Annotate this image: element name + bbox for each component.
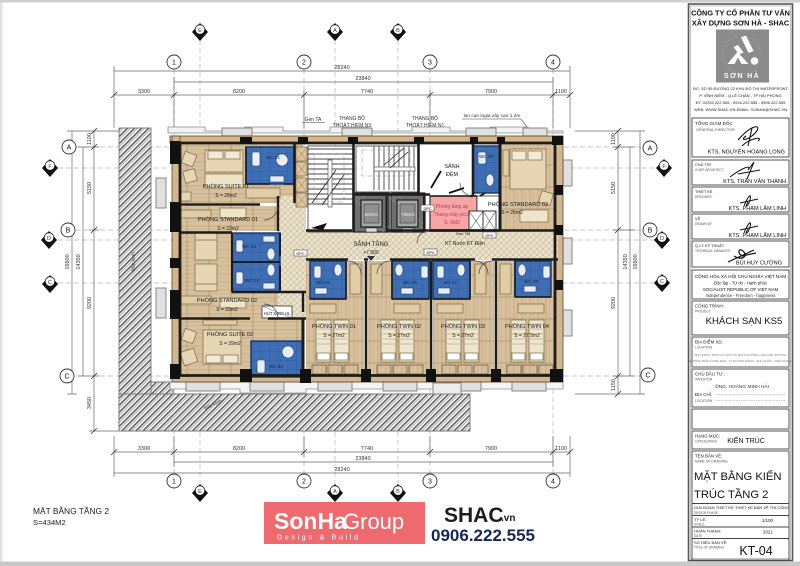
svg-text:LOCATION: LOCATION	[695, 346, 713, 350]
svg-text:S = 27m2: S = 27m2	[388, 333, 410, 339]
svg-text:SOCIALIST REPUBLIC OF VIET NAM: SOCIALIST REPUBLIC OF VIET NAM	[703, 287, 779, 292]
svg-text:E: E	[198, 28, 202, 34]
svg-text:1150: 1150	[611, 379, 617, 391]
svg-text:16600: 16600	[633, 254, 639, 269]
svg-text:PHÒNG TWIN 02: PHÒNG TWIN 02	[377, 323, 421, 330]
svg-text:PHÒNG STANDARD 03: PHÒNG STANDARD 03	[488, 201, 548, 208]
svg-text:7740: 7740	[361, 89, 373, 95]
svg-text:2021: 2021	[763, 530, 773, 535]
svg-text:PHÒNG TWIN 01: PHÒNG TWIN 01	[312, 323, 356, 330]
svg-text:7900: 7900	[485, 446, 497, 452]
svg-text:5150: 5150	[87, 182, 93, 194]
svg-text:B: B	[396, 489, 400, 495]
svg-text:ĐỊA CHỈ: ĐỊA CHỈ	[695, 392, 712, 397]
svg-text:Gen TA: Gen TA	[305, 117, 322, 123]
svg-text:8200: 8200	[233, 446, 245, 452]
svg-text:28240: 28240	[334, 65, 349, 71]
svg-text:KTS. NGUYỄN HOÀNG LONG: KTS. NGUYỄN HOÀNG LONG	[708, 149, 785, 156]
svg-text:HÚT KHÓI HL: HÚT KHÓI HL	[264, 311, 291, 316]
svg-text:S = 27m2: S = 27m2	[452, 333, 474, 339]
svg-text:B: B	[396, 28, 400, 34]
svg-text:1100: 1100	[555, 446, 567, 452]
svg-text:TITLE OF DRAWING: TITLE OF DRAWING	[694, 546, 725, 550]
svg-text:ĐT: 02252.222.555 - 0916.222.5: ĐT: 02252.222.555 - 0916.222.555 - 0906.…	[696, 100, 787, 105]
svg-text:CÔNG TRÌNH:: CÔNG TRÌNH:	[695, 304, 724, 309]
svg-text:1: 1	[172, 60, 176, 67]
svg-text:ĐƯỜNG TRẦN HƯNG ĐẠO - TT DƯƠNG: ĐƯỜNG TRẦN HƯNG ĐẠO - TT DƯƠNG ĐÔNG - PH…	[690, 358, 793, 363]
svg-text:Mái kính: Mái kính	[131, 252, 137, 271]
svg-text:ĐỆM: ĐỆM	[446, 170, 459, 178]
svg-text:A: A	[333, 489, 337, 495]
svg-text:WEB: WWW.SHAC.VN-EMAIL: SONHA@: WEB: WWW.SHAC.VN-EMAIL: SONHA@SHAC.VN	[694, 107, 787, 112]
svg-text:WC 01: WC 01	[266, 155, 280, 160]
svg-text:KTS. TRẦN VĂN THÀNH: KTS. TRẦN VĂN THÀNH	[723, 178, 786, 185]
svg-text:1: 1	[172, 479, 176, 486]
svg-text:Group: Group	[343, 509, 404, 534]
svg-text:Gen TM: Gen TM	[456, 231, 470, 236]
svg-text:DESIGN PHASE: DESIGN PHASE	[694, 511, 718, 515]
svg-text:THIẾT KẾ BẢN VẼ THI CÔNG: THIẾT KẾ BẢN VẼ THI CÔNG	[735, 505, 789, 510]
svg-text:5150: 5150	[611, 182, 617, 194]
svg-text:NAME OF DRAWING: NAME OF DRAWING	[695, 460, 728, 464]
svg-text:PHÒNG STANDARD 02: PHÒNG STANDARD 02	[197, 297, 257, 304]
svg-text:28240: 28240	[334, 467, 349, 473]
svg-text:CỘNG HÒA XÃ HỘI CHỦ NGHĨA VIỆT: CỘNG HÒA XÃ HỘI CHỦ NGHĨA VIỆT NAM	[695, 272, 786, 279]
svg-text:KHÁCH SẠN KS5: KHÁCH SẠN KS5	[706, 316, 783, 327]
svg-text:0906.222.555: 0906.222.555	[431, 526, 535, 545]
svg-text:PHÒNG SUITE 02: PHÒNG SUITE 02	[207, 331, 253, 338]
svg-text:lan can logia xây cao 1.2m: lan can logia xây cao 1.2m	[464, 113, 521, 119]
svg-text:2: 2	[302, 60, 306, 67]
svg-text:Design & Build: Design & Build	[277, 533, 361, 542]
svg-text:A: A	[648, 146, 653, 153]
svg-text:Độc lập - Tự do - Hạnh phúc: Độc lập - Tự do - Hạnh phúc	[714, 281, 767, 286]
svg-text:3: 3	[428, 479, 432, 486]
svg-text:WC 09: WC 09	[479, 154, 493, 159]
svg-text:B: B	[648, 228, 653, 235]
svg-text:SẢNH: SẢNH	[444, 163, 459, 170]
svg-text:S = 29m2: S = 29m2	[219, 341, 241, 347]
svg-text:1100: 1100	[87, 133, 93, 145]
svg-text:KT Nước KT Điện: KT Nước KT Điện	[445, 241, 485, 247]
svg-text:C: C	[660, 279, 664, 285]
svg-text:D: D	[47, 236, 51, 242]
svg-text:C: C	[48, 280, 52, 286]
svg-text:WC 03: WC 03	[245, 278, 259, 283]
svg-text:WC 04: WC 04	[269, 364, 283, 369]
svg-text:SỐ HIỆU BẢN VẼ:: SỐ HIỆU BẢN VẼ:	[694, 540, 727, 545]
svg-text:9200: 9200	[87, 297, 93, 309]
svg-text:S=434M2: S=434M2	[33, 518, 66, 527]
svg-text:14350: 14350	[623, 254, 629, 269]
svg-text:3450: 3450	[87, 397, 93, 409]
svg-text:Thang máy pccc: Thang máy pccc	[434, 212, 471, 218]
svg-text:KTS. PHẠM LÂM LINH: KTS. PHẠM LÂM LINH	[728, 232, 786, 239]
svg-text:2: 2	[302, 479, 306, 486]
svg-text:P. VĨNH NIỆM - Q.LÊ CHÂN - TP: P. VĨNH NIỆM - Q.LÊ CHÂN - TP HẢI PHÒNG	[699, 93, 781, 98]
svg-text:THANG BỘ: THANG BỘ	[412, 115, 438, 122]
svg-text:7900: 7900	[485, 89, 497, 95]
svg-text:A: A	[67, 145, 72, 152]
svg-text:3: 3	[428, 60, 432, 67]
svg-text:S = 27.5m2: S = 27.5m2	[514, 333, 540, 339]
svg-text:HOÀN THÀNH:: HOÀN THÀNH:	[694, 529, 721, 534]
svg-text:16600: 16600	[65, 254, 71, 269]
svg-text:DPC: DPC	[423, 207, 431, 211]
svg-text:S = 23m2: S = 23m2	[217, 226, 239, 232]
svg-text:Phòng tầng áp: Phòng tầng áp	[436, 204, 469, 210]
svg-text:CÔNG TY CỔ PHẦN TƯ VẤN: CÔNG TY CỔ PHẦN TƯ VẤN	[691, 8, 790, 18]
svg-text:ỐPC: ỐPC	[296, 251, 304, 256]
svg-text:THIẾT KẾ: THIẾT KẾ	[695, 189, 713, 194]
svg-text:PHÒNG TWIN 03: PHÒNG TWIN 03	[441, 323, 485, 330]
svg-text:ỐPC: ỐPC	[426, 250, 434, 255]
svg-text:KHU PHỨC HỢP DU LỊCH VÀ NGHỈ D: KHU PHỨC HỢP DU LỊCH VÀ NGHỈ DƯỠNG CAO C…	[694, 352, 787, 357]
svg-text:MẶT BẰNG TẦNG 2: MẶT BẰNG TẦNG 2	[33, 506, 109, 516]
svg-text:9200: 9200	[611, 297, 617, 309]
svg-text:INVESTOR: INVESTOR	[695, 378, 713, 382]
svg-text:SHAC: SHAC	[444, 504, 504, 527]
svg-text:D: D	[660, 236, 664, 242]
svg-text:LOCATION: LOCATION	[695, 399, 713, 403]
svg-text:HẠNG MỤC:: HẠNG MỤC:	[695, 434, 720, 439]
svg-text:8200: 8200	[233, 89, 245, 95]
svg-text:1100: 1100	[611, 133, 617, 145]
svg-text:7740: 7740	[361, 446, 373, 452]
svg-text:SẢNH TẦNG: SẢNH TẦNG	[354, 241, 389, 248]
svg-text:KTS. PHẠM LÂM LINH: KTS. PHẠM LÂM LINH	[728, 205, 786, 212]
svg-text:PHÒNG TWIN 04: PHÒNG TWIN 04	[505, 323, 549, 330]
svg-text:DATE: DATE	[694, 534, 702, 538]
svg-text:PHÒNG SUITE 01: PHÒNG SUITE 01	[203, 183, 249, 190]
svg-text:XÂY DỰNG SƠN HÀ - SHAC: XÂY DỰNG SƠN HÀ - SHAC	[692, 19, 790, 28]
svg-text:4: 4	[551, 60, 555, 67]
svg-text:.vn: .vn	[501, 513, 515, 524]
svg-text:+7.500: +7.500	[363, 250, 379, 256]
svg-text:3300: 3300	[138, 89, 150, 95]
svg-text:SƠN HÀ: SƠN HÀ	[724, 71, 760, 80]
svg-text:ỐPC: ỐPC	[485, 233, 493, 238]
svg-text:VẼ: VẼ	[695, 216, 701, 221]
svg-text:S = 27m2: S = 27m2	[323, 333, 345, 339]
svg-text:ĐỊA ĐIỂM XD:: ĐỊA ĐIỂM XD:	[695, 340, 723, 345]
svg-text:3300: 3300	[138, 446, 150, 452]
svg-text:CATEGORIES: CATEGORIES	[695, 440, 718, 444]
svg-text:23840: 23840	[355, 456, 370, 462]
svg-text:CHỦ ĐẦU TƯ:: CHỦ ĐẦU TƯ:	[695, 372, 724, 377]
svg-text:B: B	[66, 228, 71, 235]
svg-text:SCALE: SCALE	[694, 523, 704, 527]
svg-text:S. 6M2: S. 6M2	[444, 220, 460, 226]
svg-text:GENERAL DIRECTOR: GENERAL DIRECTOR	[696, 128, 735, 132]
svg-text:PROJECT: PROJECT	[695, 310, 711, 314]
svg-text:4: 4	[551, 479, 555, 486]
svg-text:DRAWN BY: DRAWN BY	[695, 222, 713, 226]
svg-text:THANG BỘ: THANG BỘ	[339, 115, 365, 122]
svg-text:TECHNICAL MANAGER: TECHNICAL MANAGER	[695, 249, 731, 253]
svg-text:WC 02: WC 02	[242, 244, 256, 249]
svg-text:S = 23m2: S = 23m2	[216, 307, 238, 313]
svg-text:CHIEF ARCHITECT: CHIEF ARCHITECT	[695, 168, 724, 172]
svg-text:TỔNG GIÁM ĐỐC: TỔNG GIÁM ĐỐC	[695, 120, 733, 126]
svg-text:750KG: 750KG	[401, 212, 415, 217]
svg-text:KT-04: KT-04	[739, 544, 772, 558]
svg-text:SonHa: SonHa	[274, 508, 347, 534]
svg-text:BÙI HUY CƯỜNG: BÙI HUY CƯỜNG	[736, 260, 782, 267]
svg-text:C: C	[64, 374, 69, 381]
svg-text:C: C	[645, 373, 650, 380]
svg-text:TÊN BẢN VẼ:: TÊN BẢN VẼ:	[695, 454, 722, 459]
svg-text:S = 28m2: S = 28m2	[215, 193, 237, 199]
svg-text:TỶ LỆ:: TỶ LỆ:	[694, 517, 706, 522]
svg-text:1100: 1100	[555, 89, 567, 95]
svg-text:E: E	[198, 489, 202, 495]
svg-text:14350: 14350	[76, 254, 82, 269]
svg-text:1/100: 1/100	[762, 518, 774, 523]
svg-text:23840: 23840	[355, 76, 370, 82]
svg-text:WC 08: WC 08	[524, 279, 538, 284]
svg-text:DESIGNED: DESIGNED	[695, 195, 712, 199]
svg-text:ĐC: SỐ 55 ĐƯỜNG 22 KHU ĐÔ THỊ: ĐC: SỐ 55 ĐƯỜNG 22 KHU ĐÔ THỊ WATERFRONT	[693, 86, 788, 91]
svg-text:WC 05: WC 05	[316, 280, 330, 285]
svg-text:A: A	[333, 28, 337, 34]
svg-text:Independence - Freedom - happi: Independence - Freedom - happiness	[706, 293, 776, 298]
svg-text:ÔNG. HOÀNG MINH HẢI: ÔNG. HOÀNG MINH HẢI	[715, 383, 769, 390]
svg-text:MẶT BẰNG KIẾN: MẶT BẰNG KIẾN	[694, 470, 781, 483]
svg-text:600KG: 600KG	[365, 212, 379, 217]
svg-text:TRÚC TẦNG 2: TRÚC TẦNG 2	[694, 488, 768, 501]
svg-text:CHỦ TRÌ: CHỦ TRÌ	[695, 162, 711, 167]
svg-text:Q.LÝ KỸ THUẬT: Q.LÝ KỸ THUẬT	[695, 243, 725, 248]
svg-text:WC 07: WC 07	[443, 280, 457, 285]
svg-text:S = 26m2: S = 26m2	[501, 210, 523, 216]
svg-text:WC 06: WC 06	[403, 280, 417, 285]
svg-text:PHÒNG STANDARD 01: PHÒNG STANDARD 01	[198, 216, 258, 223]
svg-text:GIAI ĐOẠN THIẾT KẾ:: GIAI ĐOẠN THIẾT KẾ:	[694, 505, 735, 510]
